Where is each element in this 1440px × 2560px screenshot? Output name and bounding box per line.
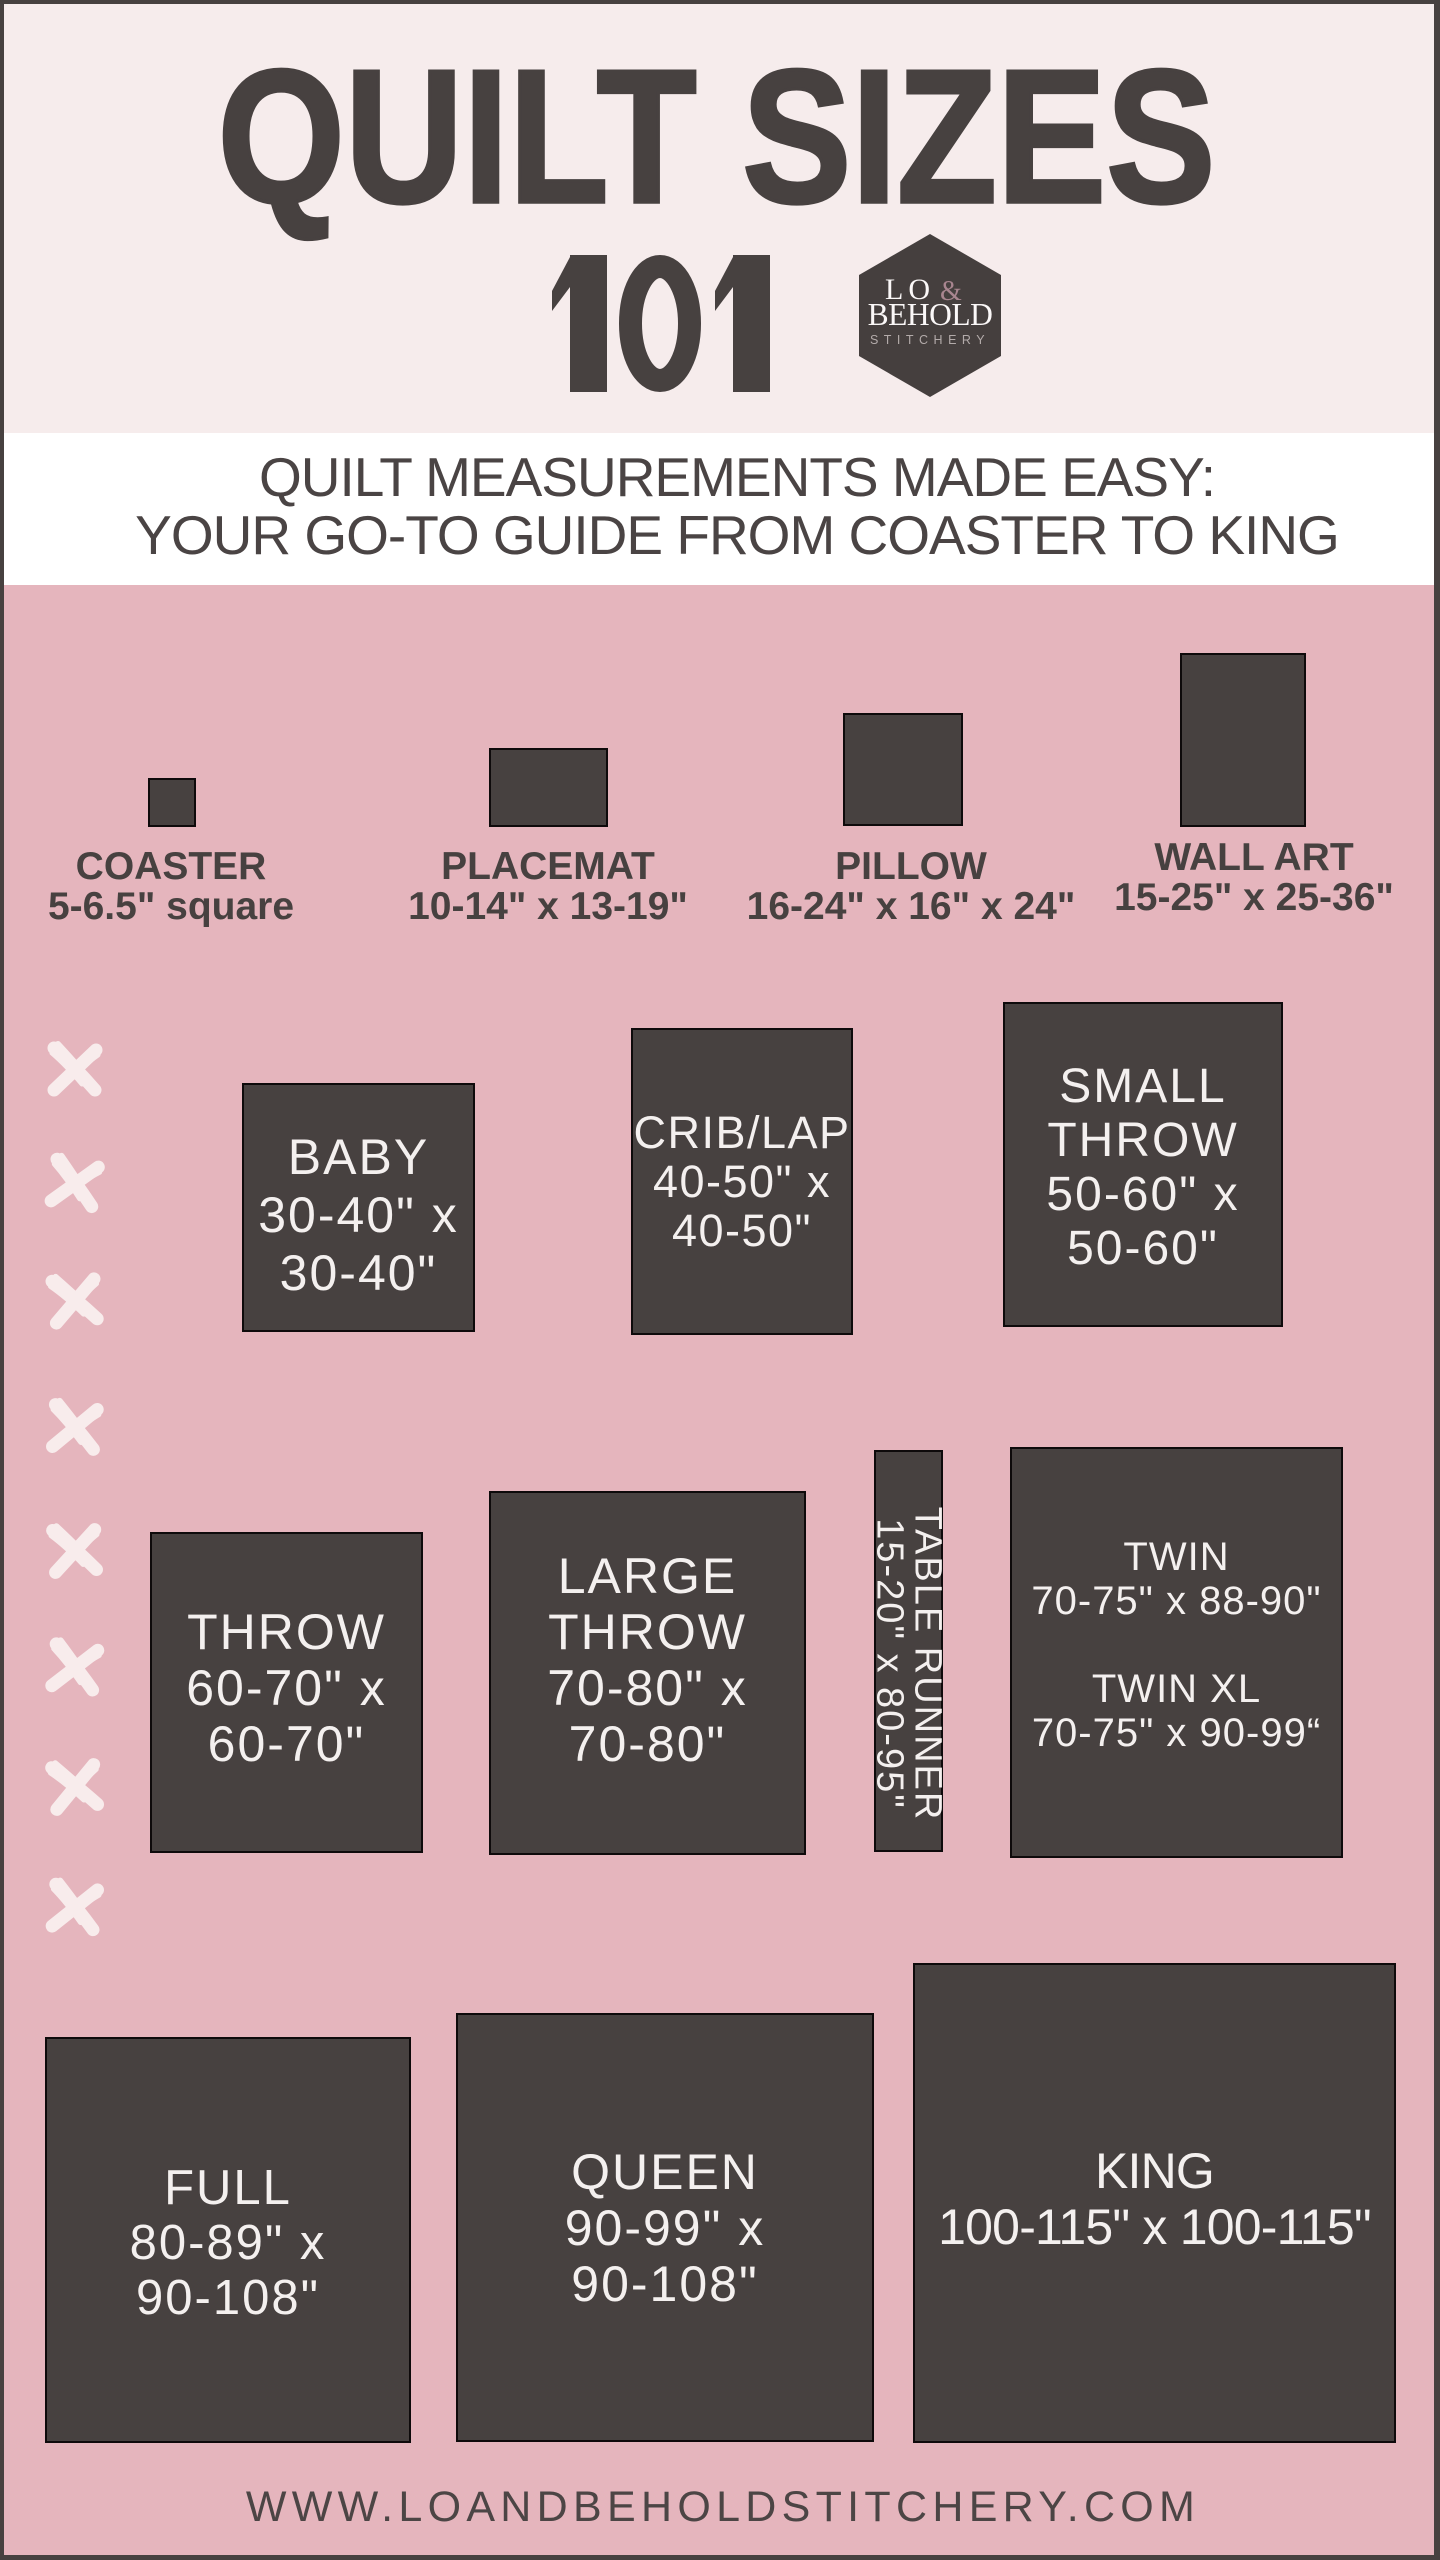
- svg-text:STITCHERY: STITCHERY: [870, 333, 990, 347]
- svg-text:BEHOLD: BEHOLD: [868, 297, 993, 332]
